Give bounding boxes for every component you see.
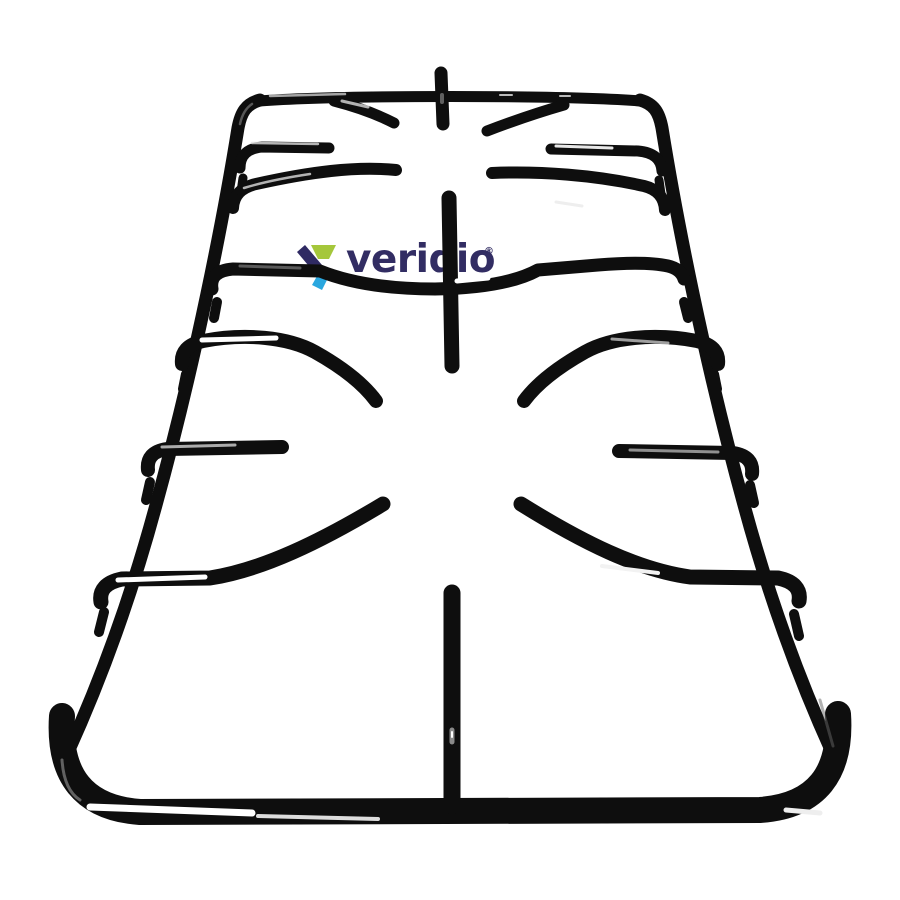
grate-front-nw-finger [182,337,376,401]
grate-weld-stub [794,614,799,636]
highlight [118,577,205,580]
grate-weld-stub [684,302,688,318]
grate-weld-stub [99,612,104,632]
highlight [457,278,488,281]
grate-bars [62,73,839,812]
grate-weld-stub [714,374,717,389]
grate-back-east-prong [551,149,662,171]
highlight [252,143,318,144]
highlight [240,266,300,268]
grate-back-ne-finger [487,105,564,131]
grate-top-rail [259,97,641,102]
grate-front-ne-finger [524,337,718,401]
watermark-brand-text: veridio [346,237,495,282]
grate-back-west-prong [240,147,329,168]
grate-right-rail [640,100,832,752]
grate-weld-stub [146,482,150,500]
grate-back-center-bar [449,198,452,366]
grate-weld-stub [214,302,217,318]
highlight [202,338,276,340]
grate-weld-stub [750,485,754,503]
highlight [630,450,718,452]
highlight [162,445,235,447]
highlight [556,146,612,148]
watermark-registered-mark: ® [484,246,494,257]
grate-back-w-diag-finger [233,169,396,208]
grate-image: veridio ® [0,0,900,900]
grate-weld-stub [183,374,186,389]
grate-weld-stub [659,180,661,194]
grate-weld-stub [241,178,243,192]
highlight [556,202,582,206]
grate-back-nw-finger [334,101,394,123]
highlight [786,810,820,813]
product-photo: veridio ® [0,0,900,900]
